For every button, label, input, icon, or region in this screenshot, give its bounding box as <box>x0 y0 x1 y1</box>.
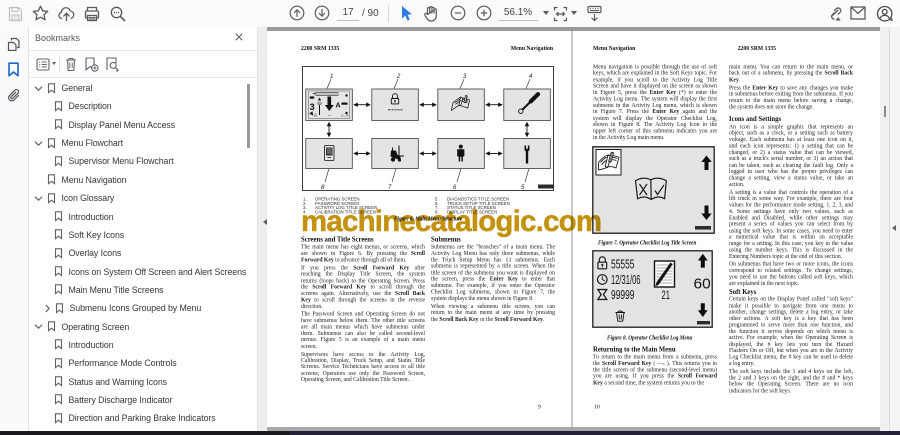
svg-text:12/31/06: 12/31/06 <box>611 273 641 287</box>
svg-text:1: 1 <box>330 74 333 80</box>
svg-text:A: A <box>336 103 341 110</box>
svg-text:55555: 55555 <box>611 258 635 272</box>
svg-text:21: 21 <box>662 290 671 302</box>
svg-text:2: 2 <box>396 74 401 80</box>
svg-text:LC 24: LC 24 <box>341 114 349 118</box>
svg-text:60: 60 <box>694 277 711 293</box>
svg-text:3: 3 <box>310 102 315 112</box>
svg-text:99999: 99999 <box>611 288 635 302</box>
